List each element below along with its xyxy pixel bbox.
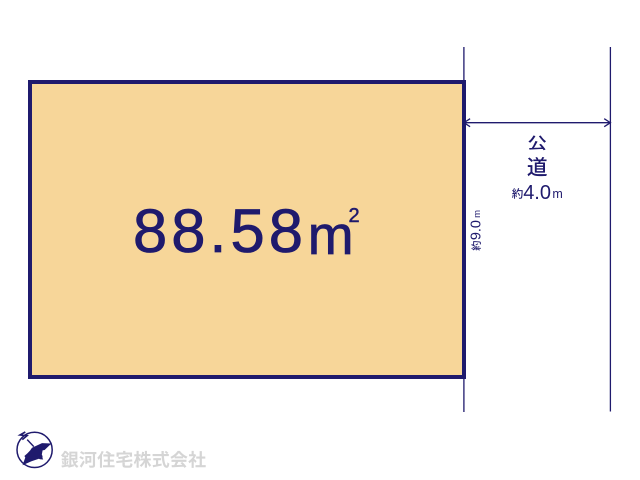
svg-text:4.0: 4.0	[523, 182, 551, 204]
svg-text:9.0: 9.0	[469, 220, 485, 240]
svg-text:m: m	[552, 187, 562, 201]
svg-text:m: m	[472, 210, 483, 218]
